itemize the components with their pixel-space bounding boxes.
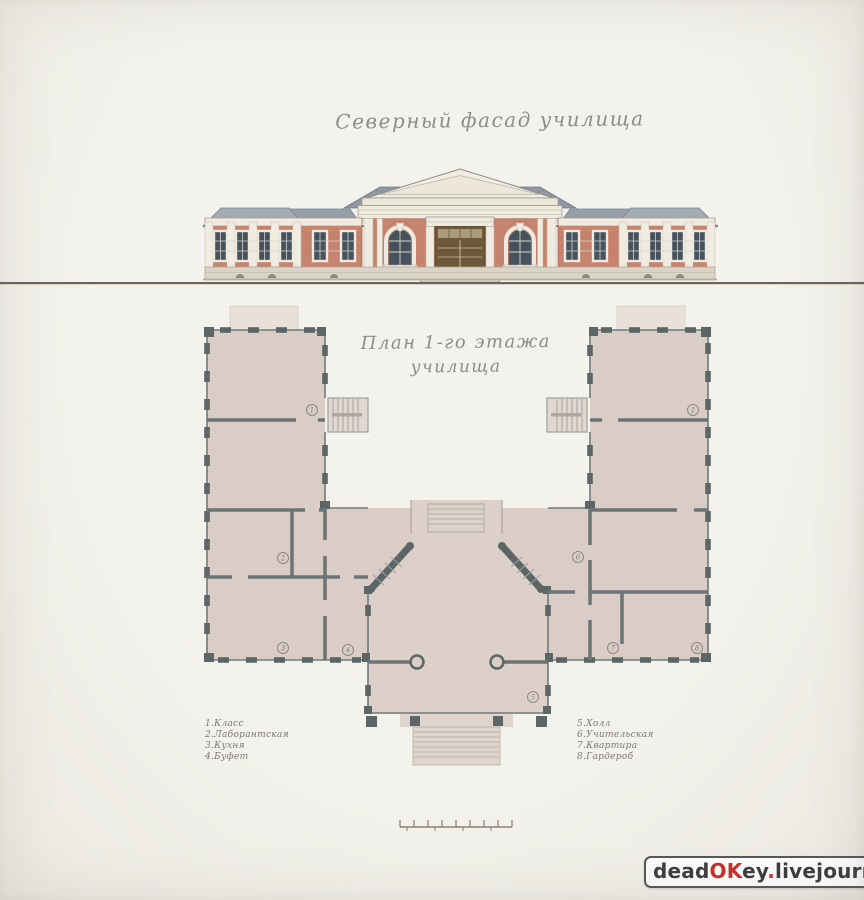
- plan-title: План 1-го этажа училища: [350, 329, 563, 381]
- watermark-text: dead: [653, 859, 710, 883]
- facade-elevation-drawing: [0, 0, 864, 300]
- pediment: [358, 169, 562, 219]
- room-number: 7: [611, 645, 616, 653]
- facade-title: Северный фасад училища: [330, 106, 650, 133]
- legend-item: 7.Квартира: [577, 741, 654, 752]
- room-number: 1: [691, 407, 695, 415]
- legend-left: 1.Класс 2.Лаборантская 3.Кухня 4.Буфет: [205, 719, 289, 763]
- watermark-text: livejournal: [775, 859, 864, 883]
- legend-right: 5.Холл 6.Учительская 7.Квартира 8.Гардер…: [577, 719, 654, 763]
- watermark: deadOKey.livejournal.com: [644, 856, 864, 888]
- watermark-text: OK: [710, 859, 743, 883]
- room-number: 5: [531, 694, 536, 702]
- watermark-text: ey: [742, 859, 767, 883]
- base-plinth: [203, 267, 717, 280]
- room-number: 1: [310, 407, 314, 415]
- legend-item: 6.Учительская: [577, 730, 654, 741]
- scale-bar: [400, 820, 512, 831]
- stair-annex-left: [328, 398, 368, 432]
- floor-plan-drawing: 1 1 2 3 4 5 6 7 8: [0, 300, 864, 840]
- watermark-text: .: [767, 859, 775, 883]
- legend-item: 8.Гардероб: [577, 752, 654, 763]
- ground-line: [0, 282, 864, 284]
- room-number: 8: [695, 645, 700, 653]
- room-number: 2: [280, 555, 286, 563]
- room-number: 3: [281, 645, 286, 653]
- legend-item: 5.Холл: [577, 719, 654, 730]
- scanned-architectural-sheet: 1 1 2 3 4 5 6 7 8: [0, 0, 864, 900]
- legend-item: 2.Лаборантская: [205, 730, 289, 741]
- legend-item: 4.Буфет: [205, 752, 289, 763]
- stair-annex-right: [547, 398, 587, 432]
- rear-annexes: [230, 306, 685, 332]
- plan-title-line1: План 1-го этажа: [350, 329, 562, 356]
- south-porch-steps: [413, 727, 500, 765]
- plan-title-line2: училища: [350, 354, 562, 381]
- room-number: 4: [345, 647, 350, 655]
- legend-item: 3.Кухня: [205, 741, 289, 752]
- room-number: 6: [576, 554, 581, 562]
- legend-item: 1.Класс: [205, 719, 289, 730]
